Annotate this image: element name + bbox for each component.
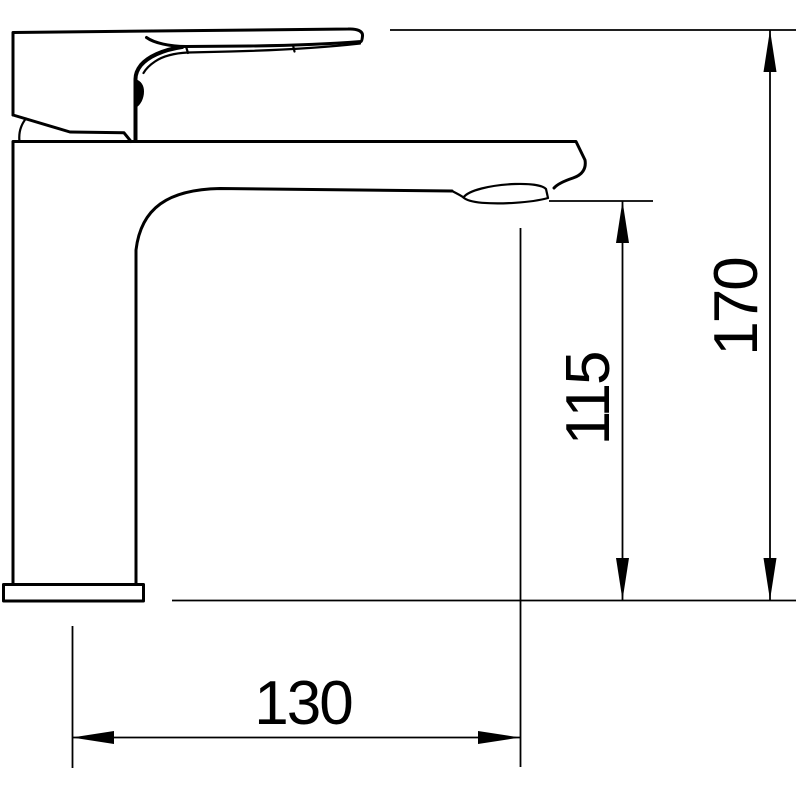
- dimension-label-total-height: 170: [702, 258, 771, 356]
- dimension-spout-height: 115: [554, 201, 629, 600]
- lever-segment-tick-2: [293, 45, 295, 51]
- handle-lever-outline: [13, 29, 363, 115]
- spout-underside-dip: [452, 191, 464, 198]
- handle-arm-recess: [136, 79, 145, 108]
- faucet-technical-drawing: 170 115 130: [0, 0, 800, 800]
- drawing-canvas: 170 115 130: [0, 0, 800, 800]
- arrow-down-total-height: [764, 558, 777, 600]
- handle-bottom-edge: [13, 115, 131, 142]
- aerator-outline: [464, 184, 549, 203]
- arrow-up-spout-height: [616, 201, 629, 243]
- arrow-up-total-height: [764, 30, 777, 72]
- base-plate: [4, 585, 144, 602]
- faucet-body-underside-outline: [136, 189, 452, 584]
- body-shoulder-arc: [19, 119, 26, 142]
- arrow-down-spout-height: [616, 558, 629, 600]
- faucet-body-top-outline: [13, 142, 585, 584]
- dimension-label-spout-height: 115: [554, 353, 623, 446]
- dimension-spout-reach: 130: [72, 669, 520, 744]
- faucet-figure: [4, 29, 586, 601]
- dimension-total-height: 170: [702, 30, 777, 600]
- arrow-right-spout-reach: [478, 731, 520, 744]
- arrow-left-spout-reach: [72, 731, 114, 744]
- dimension-label-spout-reach: 130: [254, 669, 352, 738]
